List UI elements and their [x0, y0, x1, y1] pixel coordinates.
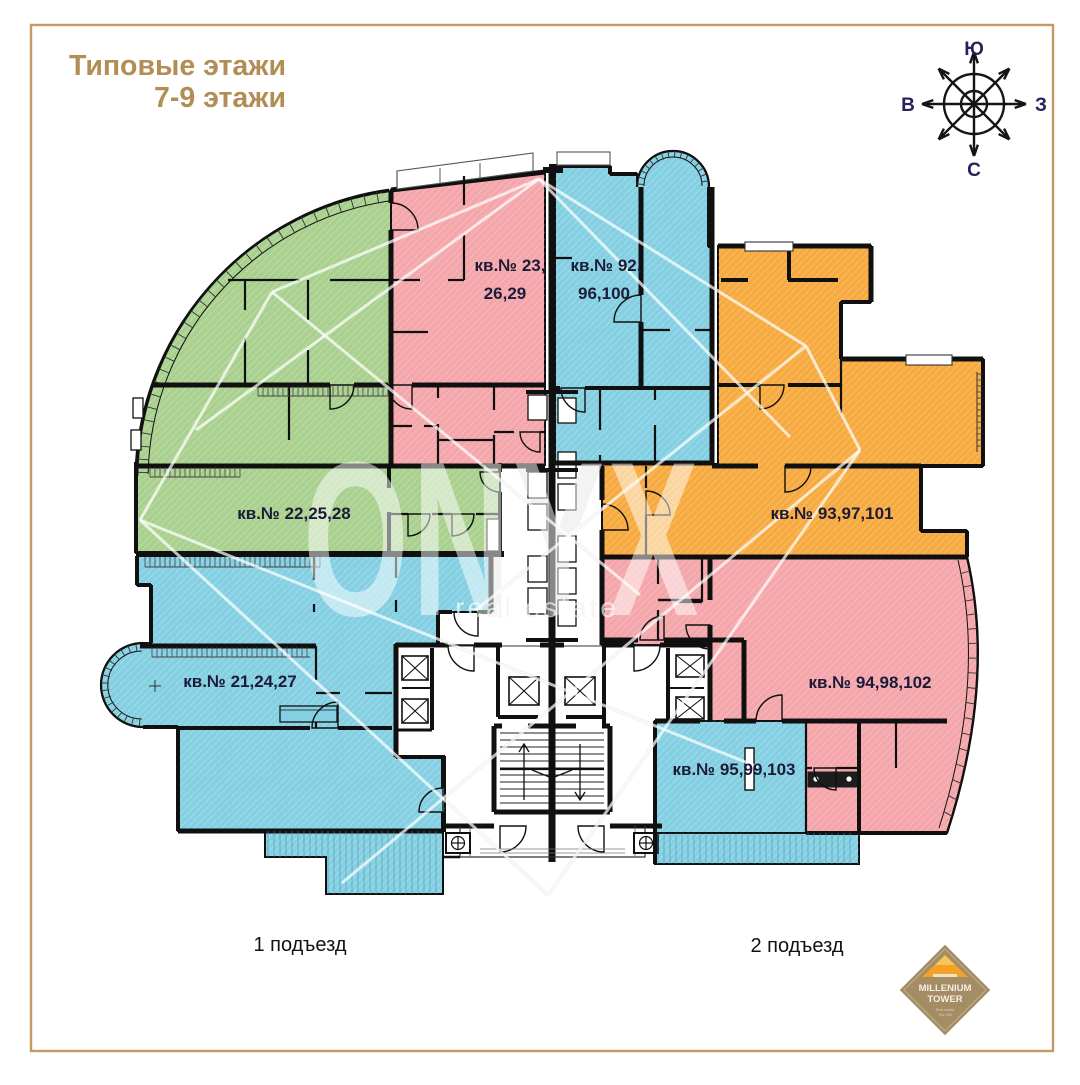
- svg-text:кв.№ 21,24,27: кв.№ 21,24,27: [183, 672, 297, 691]
- svg-text:ONYX: ONYX: [303, 415, 702, 661]
- svg-text:96,100: 96,100: [578, 284, 630, 303]
- svg-text:26,29: 26,29: [484, 284, 527, 303]
- svg-text:Real estate: Real estate: [936, 1008, 954, 1012]
- svg-text:В: В: [901, 95, 915, 116]
- svg-text:1 подъезд: 1 подъезд: [253, 934, 346, 956]
- svg-text:MILLENIUM: MILLENIUM: [919, 983, 972, 994]
- svg-text:С: С: [967, 160, 981, 181]
- svg-text:З: З: [1035, 95, 1047, 116]
- svg-text:TOWER: TOWER: [927, 994, 962, 1005]
- svg-text:кв.№ 93,97,101: кв.№ 93,97,101: [771, 504, 894, 523]
- svg-text:Типовые этажи: Типовые этажи: [69, 50, 286, 82]
- svg-text:кв.№ 23,: кв.№ 23,: [475, 256, 546, 275]
- svg-text:кв.№ 22,25,28: кв.№ 22,25,28: [237, 504, 351, 523]
- svg-text:кв.№ 92,: кв.№ 92,: [571, 256, 642, 275]
- svg-text:7-9 этажи: 7-9 этажи: [154, 82, 286, 114]
- svg-text:Ю: Ю: [964, 39, 984, 60]
- svg-text:2 подъезд: 2 подъезд: [750, 935, 843, 957]
- svg-text:real estate: real estate: [455, 592, 619, 623]
- svg-text:кв.№ 94,98,102: кв.№ 94,98,102: [809, 673, 932, 692]
- svg-text:кв.№ 95,99,103: кв.№ 95,99,103: [673, 760, 796, 779]
- svg-text:761-168: 761-168: [938, 1013, 951, 1017]
